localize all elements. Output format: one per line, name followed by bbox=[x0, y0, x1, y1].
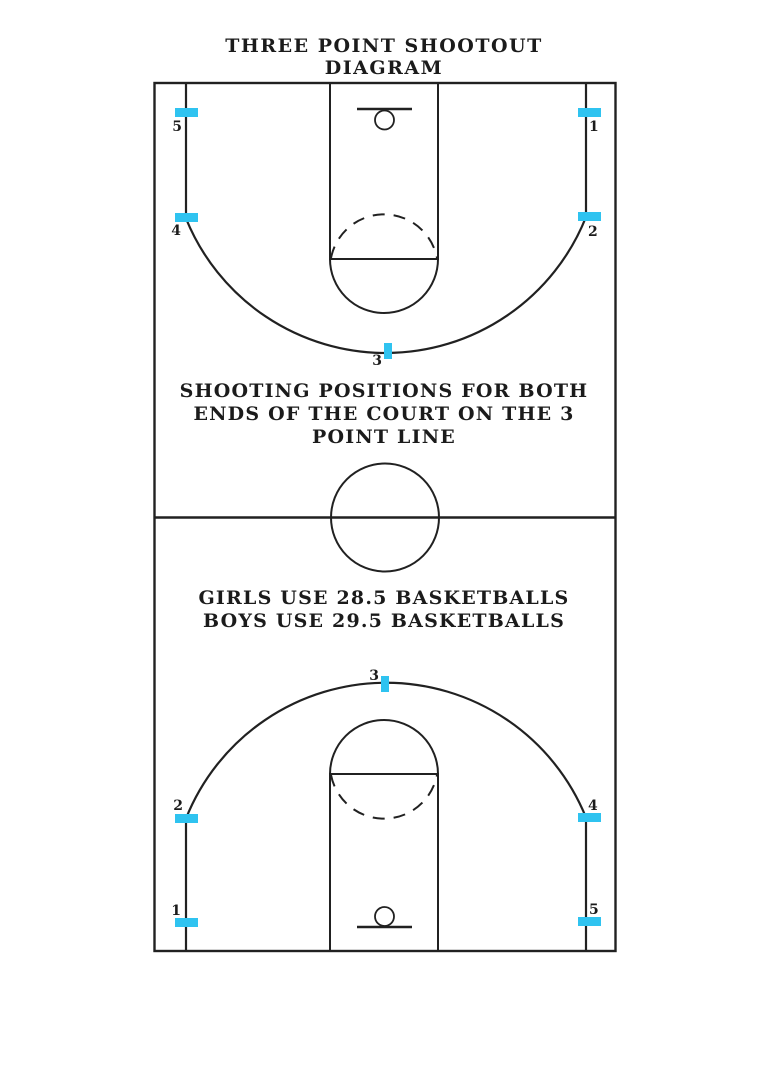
shooting-position-marker-bottom-4 bbox=[578, 813, 601, 822]
shooting-positions-note-line-3: POINT LINE bbox=[0, 426, 768, 449]
shooting-position-label-top-4: 4 bbox=[171, 223, 181, 239]
shooting-position-label-bottom-1: 1 bbox=[171, 903, 181, 919]
bottom-free-throw-circle-solid bbox=[330, 720, 438, 774]
shooting-positions-note: SHOOTING POSITIONS FOR BOTH ENDS OF THE … bbox=[0, 380, 768, 449]
shooting-position-marker-top-3 bbox=[384, 343, 392, 359]
diagram-title-line-2: DIAGRAM bbox=[0, 57, 768, 79]
shooting-position-marker-top-5 bbox=[175, 108, 198, 117]
shooting-position-label-bottom-3: 3 bbox=[369, 668, 379, 684]
shooting-position-marker-bottom-1 bbox=[175, 918, 198, 927]
top-rim bbox=[375, 111, 394, 130]
diagram-title: THREE POINT SHOOTOUT DIAGRAM bbox=[0, 35, 768, 79]
shooting-positions-note-line-1: SHOOTING POSITIONS FOR BOTH bbox=[0, 380, 768, 403]
bottom-rim bbox=[375, 907, 394, 926]
shooting-position-label-bottom-5: 5 bbox=[589, 902, 599, 918]
basketball-size-note-line-1: GIRLS USE 28.5 BASKETBALLS bbox=[0, 587, 768, 610]
shooting-positions-note-line-2: ENDS OF THE COURT ON THE 3 bbox=[0, 403, 768, 426]
bottom-free-throw-circle-dashed bbox=[331, 775, 437, 819]
page: 5412332145 THREE POINT SHOOTOUT DIAGRAM … bbox=[0, 0, 768, 1087]
diagram-title-line-1: THREE POINT SHOOTOUT bbox=[0, 35, 768, 57]
shooting-position-label-top-1: 1 bbox=[589, 119, 599, 135]
shooting-position-label-top-5: 5 bbox=[172, 119, 182, 135]
top-free-throw-circle-solid bbox=[330, 259, 438, 313]
shooting-position-marker-bottom-5 bbox=[578, 917, 601, 926]
bottom-lane-lines bbox=[330, 774, 438, 951]
shooting-position-marker-bottom-3 bbox=[381, 676, 389, 692]
bottom-three-point-line bbox=[186, 683, 586, 951]
shooting-position-label-top-3: 3 bbox=[372, 353, 382, 369]
shooting-position-marker-top-2 bbox=[578, 212, 601, 221]
shooting-position-marker-top-4 bbox=[175, 213, 198, 222]
shooting-position-marker-top-1 bbox=[578, 108, 601, 117]
basketball-size-note-line-2: BOYS USE 29.5 BASKETBALLS bbox=[0, 610, 768, 633]
shooting-position-label-bottom-4: 4 bbox=[588, 798, 598, 814]
shooting-position-label-bottom-2: 2 bbox=[173, 798, 183, 814]
basketball-size-note: GIRLS USE 28.5 BASKETBALLS BOYS USE 29.5… bbox=[0, 587, 768, 633]
shooting-position-label-top-2: 2 bbox=[588, 224, 598, 240]
court-diagram: 5412332145 bbox=[0, 0, 768, 1087]
shooting-position-marker-bottom-2 bbox=[175, 814, 198, 823]
top-free-throw-circle-dashed bbox=[331, 214, 437, 258]
